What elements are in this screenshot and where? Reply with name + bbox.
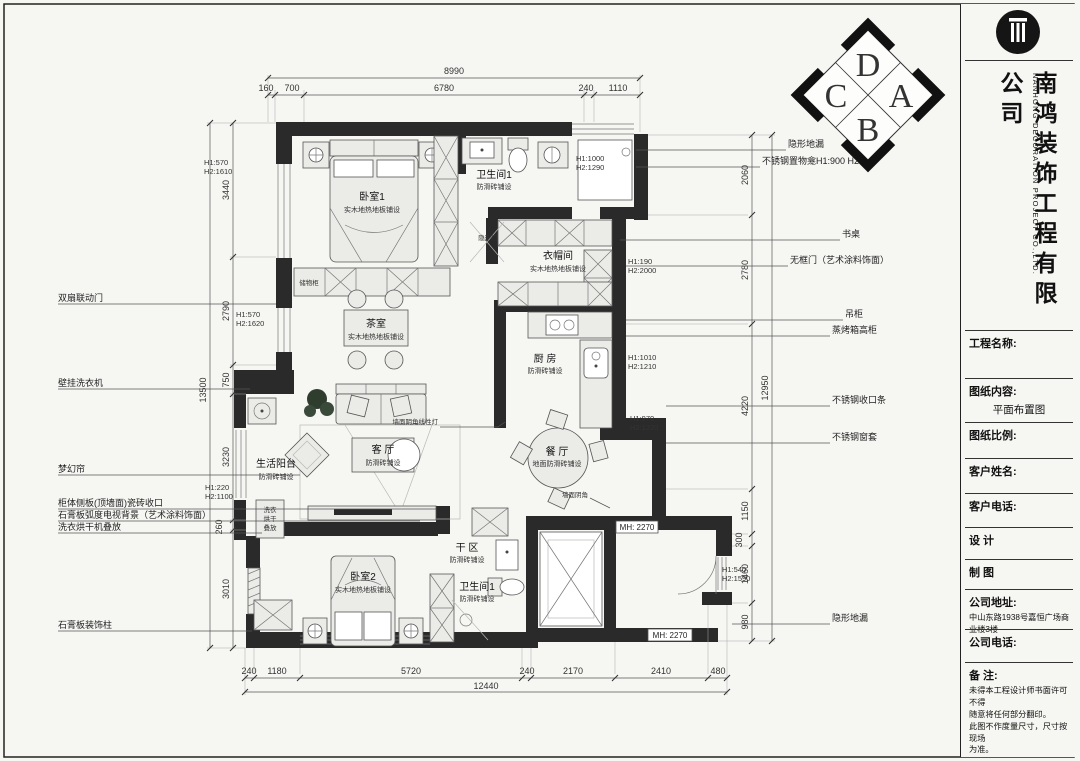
annotation: 壁挂洗衣机 <box>58 377 103 388</box>
room-dryzone-note: 防滑砖铺设 <box>450 555 485 564</box>
dim: 480 <box>710 666 725 676</box>
room-cloakroom-note: 实木地热地板铺设 <box>530 264 586 273</box>
floor-plan-canvas: 卧室1 实木地热地板铺设 卫生间1 防滑砖铺设 衣帽间 实木地热地板铺设 茶室 … <box>0 0 1080 761</box>
h-label: H2:1100 <box>205 492 233 501</box>
door-height-label-1: MH: 2270 <box>620 523 655 532</box>
dim: 6780 <box>434 83 454 93</box>
h-label: H2:2000 <box>628 266 656 275</box>
h-label: H2:1290 <box>576 163 604 172</box>
h-label: H2:1210 <box>628 362 656 371</box>
annotation: 洗衣烘干机叠放 <box>58 521 121 532</box>
annotation: 石膏板弧度电视背景（艺术涂料饰面） <box>58 509 211 520</box>
room-living: 客 厅 <box>372 443 395 456</box>
design-field: 设 计 <box>965 527 1073 560</box>
dim: 1180 <box>267 666 286 676</box>
annotation: 蒸烤箱高柜 <box>832 324 877 335</box>
company-phone-label: 公司电话: <box>965 630 1073 650</box>
walls <box>234 122 732 648</box>
dim: 5720 <box>401 666 421 676</box>
dim: 3230 <box>221 447 231 467</box>
room-bath1-note: 防滑砖铺设 <box>477 182 512 191</box>
annotation: 不锈钢收口条 <box>832 394 886 405</box>
dim: 1460 <box>740 564 750 584</box>
room-tearoom: 茶室 <box>366 317 386 330</box>
dim: 160 <box>258 83 273 93</box>
company-phone-field: 公司电话: <box>965 629 1073 663</box>
client-name-field: 客户姓名: <box>965 458 1073 494</box>
company-address-field: 公司地址: 中山东路1938号嘉恒广场商业楼3楼 <box>965 589 1073 630</box>
h-label: H1:1000 <box>576 154 604 163</box>
h-label: H2:1610 <box>204 167 232 176</box>
drawing-content-field: 图纸内容: 平面布置图 <box>965 378 1073 423</box>
compass-letter-a: A <box>889 78 914 115</box>
room-bath1: 卫生间1 <box>476 168 512 181</box>
dim-top-overall: 8990 <box>444 66 464 76</box>
room-bedroom2: 卧室2 <box>350 570 376 583</box>
title-block: 南鸿装饰工程有限公司 NANHONG DECORATION PROJECT CO… <box>960 4 1075 757</box>
annotation: 隐形地漏 <box>788 138 824 149</box>
door-height-label-2: MH: 2270 <box>653 631 688 640</box>
remark-line: 为准。 <box>969 744 1071 756</box>
h-label: H1:220 <box>205 483 229 492</box>
company-name-en: NANHONG DECORATION PROJECT CO.,LTD. <box>1031 73 1040 275</box>
client-name-label: 客户姓名: <box>965 459 1073 479</box>
stack-label-2: 烘干 <box>264 514 278 523</box>
annotation: 石膏板装饰柱 <box>58 619 112 630</box>
room-bedroom1-note: 实木地热地板铺设 <box>344 205 400 214</box>
room-balcony: 生活阳台 <box>256 457 296 470</box>
annotation: 隐形地漏 <box>832 612 868 623</box>
dim: 1110 <box>609 83 628 93</box>
dim: 3010 <box>221 579 231 599</box>
dim: 750 <box>221 372 231 387</box>
client-phone-label: 客户电话: <box>965 494 1073 514</box>
company-name-box: 南鸿装饰工程有限公司 NANHONG DECORATION PROJECT CO… <box>965 60 1073 331</box>
remark-line: 未得本工程设计师书面许可不得 <box>969 685 1071 709</box>
h-label: H1:190 <box>628 257 652 266</box>
remarks-label: 备 注: <box>965 663 1073 683</box>
project-name-label: 工程名称: <box>965 331 1073 351</box>
stack-label-1: 洗衣 <box>264 505 278 514</box>
annotation: 无框门（艺术涂料饰面） <box>790 254 889 265</box>
room-living-note: 防滑砖铺设 <box>366 458 401 467</box>
dim: 1150 <box>740 501 750 520</box>
room-cloakroom: 衣帽间 <box>543 249 573 262</box>
dim: 980 <box>740 614 750 629</box>
dim: 300 <box>734 532 744 547</box>
compass-letter-b: B <box>857 112 880 149</box>
h-label: H2:1620 <box>236 319 264 328</box>
drawing-sheet: 卧室1 实木地热地板铺设 卫生间1 防滑砖铺设 衣帽间 实木地热地板铺设 茶室 … <box>0 0 1080 761</box>
draft-field: 制 图 <box>965 559 1073 590</box>
storage-cabinet-label: 储物柜 <box>299 278 319 287</box>
room-dryzone: 干 区 <box>456 542 479 554</box>
annotation: 柜体侧板(顶墙面)瓷砖收口 <box>58 497 163 508</box>
room-bedroom2-note: 实木地热地板铺设 <box>335 585 391 594</box>
room-kitchen: 厨 房 <box>534 352 557 365</box>
drawing-scale-field: 图纸比例: <box>965 422 1073 459</box>
room-bath2: 卫生间1 <box>459 580 495 593</box>
dimension-chain-right: 2060 2780 4220 1150 300 1460 980 12950 <box>626 132 775 644</box>
annotations-right: 隐形地漏 不锈钢置物龛H1:900 H2:500 书桌 无框门（艺术涂料饰面） … <box>620 138 889 624</box>
remark-line: 此图不作度量尺寸，尺寸按现场 <box>969 721 1071 745</box>
annotation: 书桌 <box>842 228 860 239</box>
logo-icon <box>995 9 1041 55</box>
drawing-scale-label: 图纸比例: <box>965 423 1073 443</box>
design-label: 设 计 <box>965 528 1073 548</box>
draft-label: 制 图 <box>965 560 1073 580</box>
dim: 240 <box>578 83 593 93</box>
room-dining-note: 地面防滑砖铺设 <box>533 459 582 468</box>
dim: 2780 <box>740 260 750 280</box>
dim: 2410 <box>651 666 671 676</box>
stack-label-3: 叠放 <box>264 523 278 532</box>
room-tearoom-note: 实木地热地板铺设 <box>348 332 404 341</box>
h-label: H1:570 <box>204 158 228 167</box>
compass-letter-d: D <box>856 47 881 84</box>
dim: 260 <box>214 519 224 534</box>
room-balcony-note: 防滑砖铺设 <box>259 472 294 481</box>
dim-left-overall: 13500 <box>198 377 208 402</box>
room-kitchen-note: 防滑砖铺设 <box>528 366 563 375</box>
company-logo <box>961 4 1075 60</box>
dim: 2170 <box>563 666 583 676</box>
company-name-cn: 南鸿装饰工程有限公司 <box>993 71 1061 331</box>
h-label: H2:1220 <box>630 423 658 432</box>
compass-letter-c: C <box>825 78 848 115</box>
company-address-label: 公司地址: <box>965 590 1073 610</box>
windows <box>236 124 726 644</box>
dim: 2060 <box>740 165 750 185</box>
remark-line: 随意将任何部分翻印。 <box>969 709 1071 721</box>
dim-right-overall: 12950 <box>760 375 770 400</box>
annotation: 梦幻帘 <box>58 463 85 474</box>
dim: 700 <box>284 83 299 93</box>
h-label: H1:570 <box>236 310 260 319</box>
remarks-field: 备 注: 未得本工程设计师书面许可不得 随意将任何部分翻印。 此图不作度量尺寸，… <box>965 662 1073 758</box>
drawing-content-label: 图纸内容: <box>965 379 1073 399</box>
dim: 3440 <box>221 180 231 200</box>
dim-bottom-overall: 12440 <box>473 681 498 691</box>
room-dining: 餐 厅 <box>546 445 569 458</box>
room-bedroom1: 卧室1 <box>359 190 385 203</box>
corner-light-label: 墙面阴角线性灯 <box>393 417 439 426</box>
h-label: H1:1010 <box>628 353 656 362</box>
client-phone-field: 客户电话: <box>965 493 1073 528</box>
annotation: 不锈钢窗套 <box>832 431 877 442</box>
h-label: H1:970 <box>630 414 654 423</box>
project-name-field: 工程名称: <box>965 330 1073 379</box>
drawing-content-value: 平面布置图 <box>965 402 1073 417</box>
dim: 240 <box>519 666 534 676</box>
annotation: 吊柜 <box>845 308 863 319</box>
annotation: 双扇联动门 <box>58 292 103 303</box>
dim: 240 <box>241 666 256 676</box>
room-bath2-note: 防滑砖铺设 <box>460 594 495 603</box>
hidden-door-label: 隐形门 <box>478 233 498 242</box>
wall-corner-label: 墙面阴角 <box>562 490 588 499</box>
